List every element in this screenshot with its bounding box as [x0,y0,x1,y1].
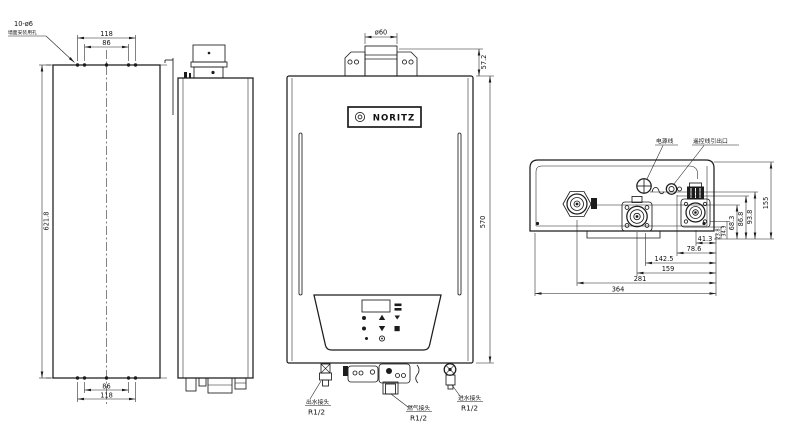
inlet-callout: 进水接头 R1/2 [452,385,483,413]
dim-h-938: 93.8 [746,210,754,225]
back-view: 118 86 86 118 621.8 10-ø6 墙面安装用孔 [8,20,167,404]
dim-flue-height: 57.2 [480,55,488,70]
gas-label: 燃气接头 [407,404,430,412]
lcd-display [362,300,390,312]
dim-w-364: 364 [612,286,625,294]
dim-w-1425: 142.5 [655,255,674,263]
dim-w-413: 41.3 [698,235,713,243]
bottom-view-vertical-dims: 68.3 86.8 93.8 155 23.8 34.3 [593,162,774,240]
side-bottom-fittings [186,378,246,393]
down-arrow-button[interactable] [379,326,385,331]
power-cord-callout: 电源线 [647,137,678,179]
remote-label: 遥控线引出口 [693,137,728,145]
panel-button[interactable] [362,316,366,320]
panel-button[interactable] [365,337,368,340]
front-view: ø60 57.2 570 NORITZ [287,29,494,423]
drawing-page: 118 86 86 118 621.8 10-ø6 墙面安装用孔 [0,0,790,446]
outlet-fitting [563,192,597,217]
front-bottom-connectors [320,364,456,394]
power-label: 电源线 [656,137,674,145]
panel-button[interactable] [395,316,401,320]
dim-back-top-inner: 86 [102,39,110,47]
power-cord-grommet [637,179,651,193]
control-panel [314,295,441,350]
panel-button[interactable] [395,326,400,331]
dim-back-top-outer: 118 [100,30,113,38]
outlet-size: R1/2 [308,408,325,417]
gas-callout: 燃气接头 R1/2 [391,394,432,423]
dim-s-343: 34.3 [722,225,728,236]
brand-text: NORITZ [373,114,415,124]
dim-h-868: 86.8 [737,212,745,227]
callout-text: 10-ø6 [14,20,33,28]
callout-note: 墙面安装用孔 [8,29,37,36]
technical-drawing-canvas: 118 86 86 118 621.8 10-ø6 墙面安装用孔 [0,0,790,446]
dim-back-bottom-outer: 118 [100,392,113,400]
noritz-logo-icon [355,112,364,121]
noritz-logo: NORITZ [348,107,421,127]
bottom-view: 电源线 遥控线引出口 68.3 86.8 93.8 155 [530,137,774,296]
inlet-label: 进水接头 [458,394,481,402]
left-panel-slot [299,133,302,295]
right-panel-slot [458,133,461,295]
outlet-label: 出水接头 [306,398,329,406]
up-arrow-button[interactable] [379,315,385,320]
dim-back-height: 621.8 [43,212,51,231]
dim-h-155: 155 [762,197,770,210]
mounting-hole-callout: 10-ø6 墙面安装用孔 [8,20,75,63]
gas-size: R1/2 [410,414,427,423]
side-view [165,45,253,393]
remote-wire-outlet [652,184,682,194]
flue-front [345,46,417,76]
inlet-size: R1/2 [461,404,478,413]
dim-w-159: 159 [662,265,675,273]
dim-w-281: 281 [634,275,647,283]
bottom-view-horizontal-dims: 41.3 78.6 142.5 159 281 364 [535,195,716,296]
panel-button[interactable] [362,327,366,331]
flue-side [191,45,227,78]
dim-w-786: 78.6 [687,245,702,253]
dim-body-height: 570 [479,216,487,229]
dim-flue-diameter: ø60 [375,29,387,37]
dim-back-bottom-inner: 86 [102,383,110,391]
dim-h-683: 68.3 [728,216,736,231]
